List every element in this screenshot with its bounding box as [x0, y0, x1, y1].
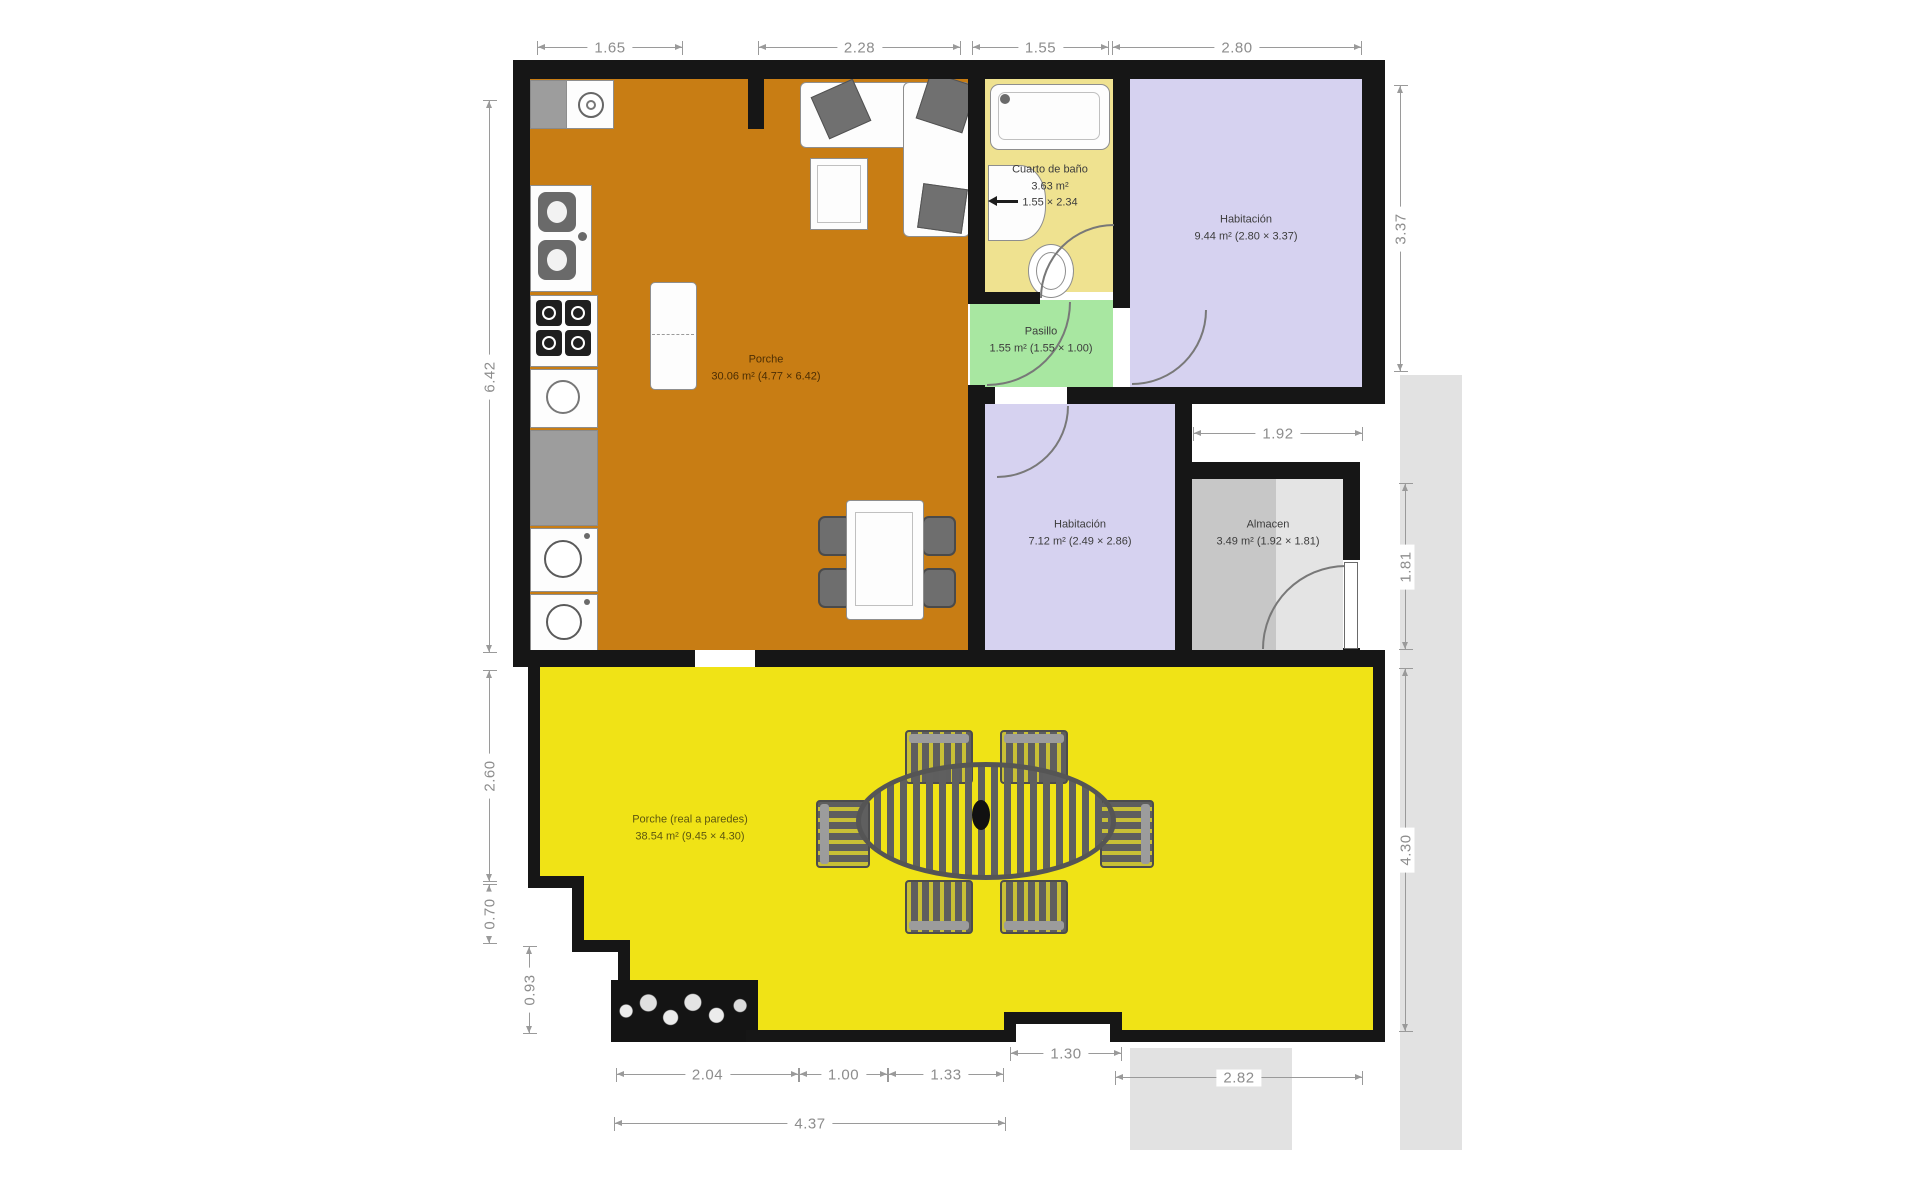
burner-icon — [565, 330, 591, 356]
dim-label: 2.60 — [482, 753, 499, 798]
wall-porche-bath-lower — [968, 385, 985, 667]
kitchen-island — [650, 282, 697, 390]
label-bedroom-1: Habitación 9.44 m² (2.80 × 3.37) — [1194, 212, 1297, 245]
wall-right-upper — [1362, 60, 1385, 402]
label-bedroom-2: Habitación 7.12 m² (2.49 × 2.86) — [1028, 517, 1131, 550]
label-porche-interior: Porche 30.06 m² (4.77 × 6.42) — [711, 352, 820, 385]
porch-wall-bottom-2 — [1110, 1030, 1385, 1042]
washer-knob-icon — [584, 599, 590, 605]
dim-label: 0.70 — [482, 891, 499, 936]
washer-drum-icon — [544, 540, 582, 578]
dim-label: 1.92 — [1255, 426, 1300, 443]
wall-bed2-right — [1175, 404, 1192, 667]
floor-plan: Cuarto de baño 3.63 m² 1.55 × 2.34 Habit… — [0, 0, 1920, 1200]
wall-bottom-left — [513, 650, 695, 667]
storage-door-leaf — [1344, 562, 1358, 649]
dim-bottom-3: 1.33 — [888, 1074, 1004, 1075]
faucet-icon — [578, 232, 587, 241]
wall-storage-top — [1175, 462, 1360, 479]
dim-left-2: 2.60 — [489, 670, 490, 882]
burner-icon — [565, 300, 591, 326]
dim-label: 4.37 — [787, 1116, 832, 1133]
dim-top-1: 1.65 — [537, 47, 683, 48]
dim-notch: 1.30 — [1010, 1053, 1122, 1054]
porch-wall-right — [1373, 667, 1385, 1042]
wall-stub — [748, 79, 764, 129]
umbrella-hole-icon — [972, 800, 990, 830]
room-detail: 9.44 m² (2.80 × 3.37) — [1194, 228, 1297, 245]
outdoor-chair — [905, 880, 973, 934]
dim-right-3: 4.30 — [1405, 668, 1406, 1032]
dim-bottom-2: 1.00 — [799, 1074, 888, 1075]
sink-basin-icon — [538, 240, 576, 280]
room-detail: 3.49 m² (1.92 × 1.81) — [1216, 533, 1319, 550]
coffee-table-inset — [817, 165, 861, 223]
room-storage-left — [1192, 479, 1276, 650]
dim-label: 0.93 — [522, 967, 539, 1012]
bathtub-inset — [998, 92, 1100, 140]
label-bathroom: Cuarto de baño 3.63 m² 1.55 × 2.34 — [1012, 161, 1088, 211]
washer-knob-icon — [584, 533, 590, 539]
dim-left-3: 0.70 — [489, 884, 490, 944]
dim-label: 1.00 — [821, 1067, 866, 1084]
dining-chair-icon — [922, 568, 956, 608]
dim-label: 1.55 — [1018, 40, 1063, 57]
room-detail: 38.54 m² (9.45 × 4.30) — [632, 828, 748, 845]
wall-left — [513, 60, 530, 667]
dim-label: 4.30 — [1398, 827, 1415, 872]
porch-notch-gap — [1016, 1024, 1110, 1048]
planter-with-flowers — [611, 980, 758, 1042]
outdoor-chair — [1000, 880, 1068, 934]
dim-right-2: 1.81 — [1405, 483, 1406, 650]
wall-bath-bed1 — [1113, 60, 1130, 308]
room-area: 3.63 m² — [1012, 178, 1088, 195]
label-storage: Almacen 3.49 m² (1.92 × 1.81) — [1216, 517, 1319, 550]
room-name: Habitación — [1028, 517, 1131, 534]
wall-bed1-bottom-right — [1067, 387, 1385, 404]
wall-porche-bath-upper — [968, 60, 985, 302]
fan-icon — [578, 92, 604, 118]
dim-label: 2.28 — [837, 40, 882, 57]
wall-top — [513, 60, 1385, 79]
dim-bottom-1: 2.04 — [616, 1074, 799, 1075]
porch-notch-top — [1004, 1012, 1122, 1024]
room-detail: 1.55 m² (1.55 × 1.00) — [989, 340, 1092, 357]
dim-top-4: 2.80 — [1112, 47, 1362, 48]
kitchen-counter-top — [530, 80, 568, 129]
dining-table-inset — [855, 512, 913, 606]
porch-fill-2 — [578, 886, 1379, 946]
dim-label: 1.65 — [587, 40, 632, 57]
washer-drum-icon — [546, 604, 582, 640]
sofa-cushion-icon — [917, 183, 968, 234]
room-detail: 7.12 m² (2.49 × 2.86) — [1028, 533, 1131, 550]
dim-label: 1.30 — [1043, 1046, 1088, 1063]
kitchen-counter-low — [530, 430, 598, 526]
drain-icon — [1000, 94, 1010, 104]
room-name: Almacen — [1216, 517, 1319, 534]
dim-storage-width: 1.92 — [1193, 433, 1363, 434]
wall-storage-right-lower — [1343, 648, 1360, 667]
room-detail: 30.06 m² (4.77 × 6.42) — [711, 368, 820, 385]
wall-storage-right-upper — [1343, 462, 1360, 560]
room-name: Habitación — [1194, 212, 1297, 229]
room-name: Porche — [711, 352, 820, 369]
dim-bottom-right: 2.82 — [1115, 1077, 1363, 1078]
dim-label: 1.33 — [923, 1067, 968, 1084]
dim-label: 2.80 — [1214, 40, 1259, 57]
dim-left-1: 6.42 — [489, 100, 490, 653]
porch-wall-left — [528, 667, 540, 888]
burner-icon — [536, 330, 562, 356]
dim-left-4: 0.93 — [529, 946, 530, 1034]
island-divider — [652, 334, 694, 335]
wall-bottom-right — [755, 650, 1385, 667]
dim-label: 2.04 — [685, 1067, 730, 1084]
burner-icon — [536, 300, 562, 326]
porch-wall-bottom-1 — [746, 1030, 1016, 1042]
room-name: Cuarto de baño — [1012, 161, 1088, 178]
sink-basin-icon — [538, 192, 576, 232]
dim-label: 3.37 — [1393, 206, 1410, 251]
label-hallway: Pasillo 1.55 m² (1.55 × 1.00) — [989, 324, 1092, 357]
wall-bed1-bottom-left — [968, 387, 995, 404]
dim-right-1: 3.37 — [1400, 85, 1401, 372]
label-porche-exterior: Porche (real a paredes) 38.54 m² (9.45 ×… — [632, 812, 748, 845]
room-name: Pasillo — [989, 324, 1092, 341]
oven-dial-icon — [546, 380, 580, 414]
exterior-pad-bottom — [1130, 1048, 1292, 1150]
room-name: Porche (real a paredes) — [632, 812, 748, 829]
dining-chair-icon — [922, 516, 956, 556]
dim-label: 2.82 — [1216, 1070, 1261, 1087]
dim-top-3: 1.55 — [972, 47, 1109, 48]
dim-top-2: 2.28 — [758, 47, 961, 48]
dim-label: 1.81 — [1398, 544, 1415, 589]
exterior-pad-right — [1400, 375, 1462, 1150]
dim-label: 6.42 — [482, 354, 499, 399]
dim-bottom-total: 4.37 — [614, 1123, 1006, 1124]
room-size: 1.55 × 2.34 — [1012, 194, 1088, 211]
